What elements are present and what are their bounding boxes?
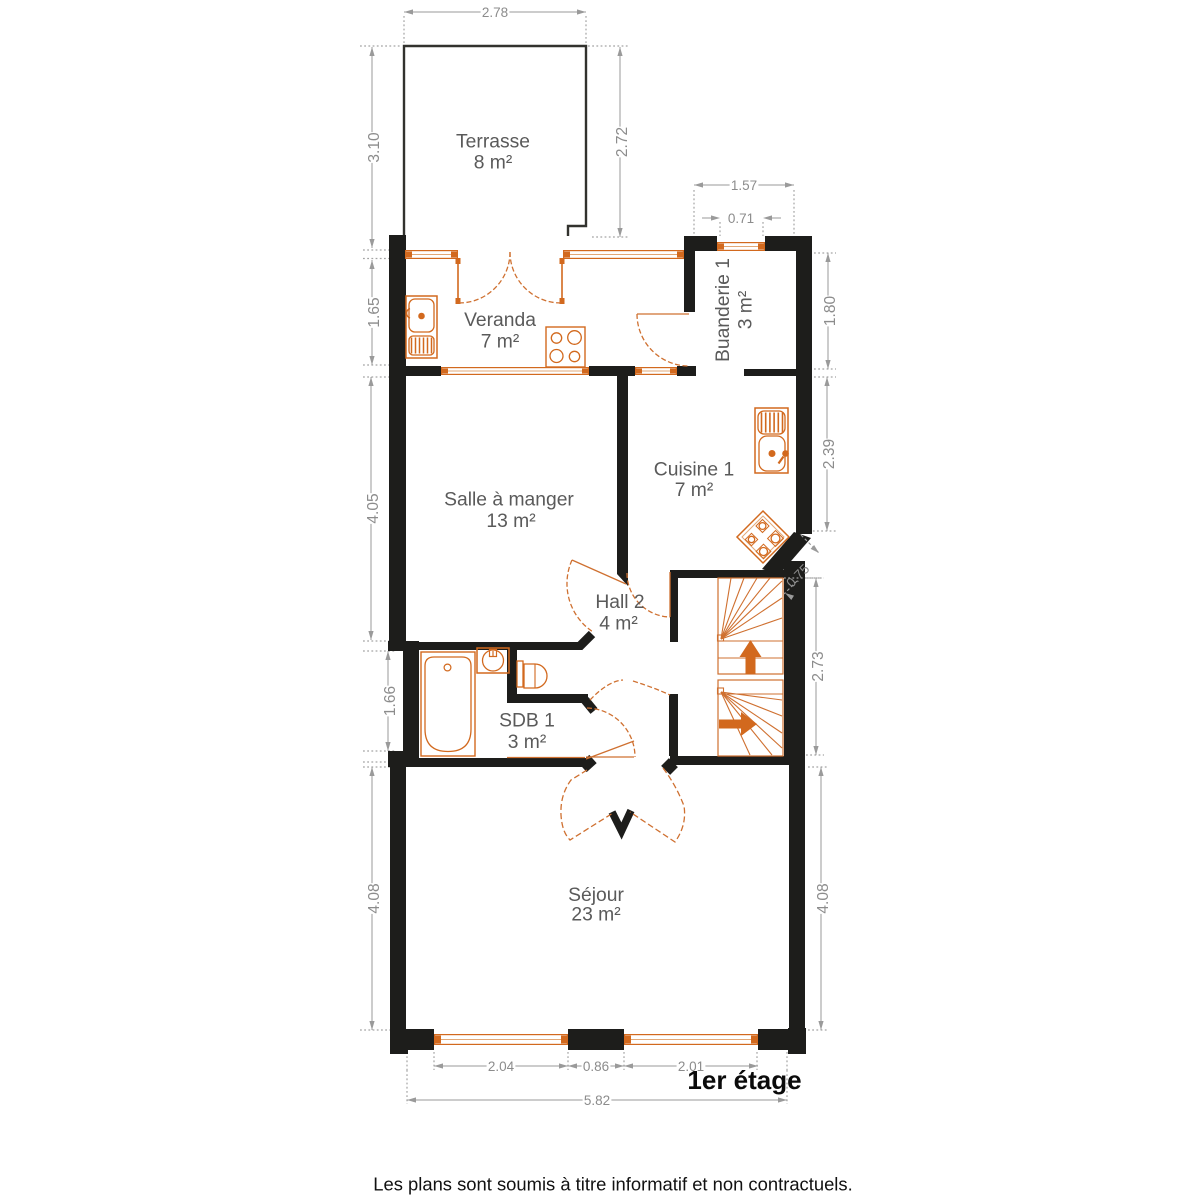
- svg-text:2.73: 2.73: [810, 651, 827, 681]
- svg-text:Salle à manger: Salle à manger: [444, 490, 574, 511]
- svg-text:4.05: 4.05: [365, 493, 382, 523]
- svg-text:1.80: 1.80: [822, 296, 839, 327]
- svg-text:Terrasse: Terrasse: [456, 132, 530, 153]
- svg-text:4.08: 4.08: [366, 883, 383, 913]
- svg-text:3.10: 3.10: [366, 132, 383, 163]
- svg-text:0.86: 0.86: [583, 1059, 609, 1074]
- svg-text:4.08: 4.08: [815, 883, 832, 913]
- svg-text:7 m²: 7 m²: [675, 480, 714, 501]
- svg-text:4 m²: 4 m²: [599, 614, 638, 635]
- svg-text:1.57: 1.57: [731, 178, 757, 193]
- svg-text:7 m²: 7 m²: [481, 332, 520, 353]
- svg-text:13 m²: 13 m²: [486, 511, 536, 532]
- svg-text:2.39: 2.39: [821, 439, 838, 469]
- svg-text:1er étage: 1er étage: [687, 1065, 801, 1095]
- svg-text:1.65: 1.65: [366, 297, 383, 327]
- svg-text:SDB 1: SDB 1: [499, 711, 555, 732]
- svg-text:5.82: 5.82: [584, 1093, 610, 1108]
- svg-text:Les plans sont soumis à titre: Les plans sont soumis à titre informatif…: [373, 1174, 852, 1195]
- svg-text:8 m²: 8 m²: [474, 153, 513, 174]
- svg-text:Buanderie 1: Buanderie 1: [713, 258, 734, 362]
- svg-text:2.72: 2.72: [614, 127, 631, 157]
- svg-text:23 m²: 23 m²: [571, 905, 621, 926]
- svg-text:Cuisine 1: Cuisine 1: [654, 460, 734, 481]
- svg-text:2.78: 2.78: [482, 5, 508, 20]
- svg-text:3 m²: 3 m²: [736, 290, 757, 329]
- svg-text:1.66: 1.66: [382, 686, 399, 716]
- svg-text:2.04: 2.04: [488, 1059, 515, 1074]
- svg-text:Veranda: Veranda: [464, 310, 536, 331]
- svg-text:3 m²: 3 m²: [508, 732, 547, 753]
- svg-text:Séjour: Séjour: [568, 885, 624, 906]
- svg-text:Hall 2: Hall 2: [595, 592, 644, 613]
- svg-text:0.71: 0.71: [728, 211, 754, 226]
